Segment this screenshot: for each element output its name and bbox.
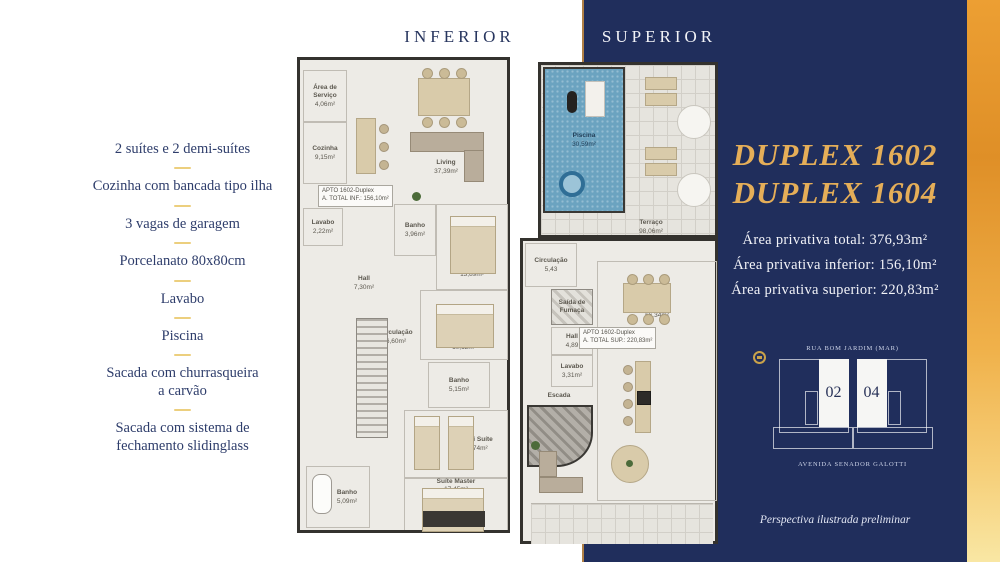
divider: [174, 167, 191, 169]
footnote: Perspectiva ilustrada preliminar: [718, 514, 952, 526]
inferior-plan-body: Área de Serviço 4,06m² Cozinha 9,15m² Li…: [297, 57, 510, 533]
lounge-sofa: [539, 477, 583, 493]
chair: [439, 68, 450, 79]
room-circulacao-sup: Circulação 5,43: [525, 243, 577, 287]
divider: [174, 242, 191, 244]
divider: [174, 409, 191, 411]
inferior-title: INFERIOR: [392, 27, 527, 47]
feature-item: Sacada com churrasqueira a carvão: [106, 365, 258, 400]
room-banho-1: Banho 3,96m²: [394, 204, 436, 256]
apto-label-inferior: APTO 1602-Duplex A. TOTAL INF.: 156,10m²: [318, 185, 393, 207]
room-lavabo-sup: Lavabo 3,31m²: [551, 355, 593, 387]
feature-item: 3 vagas de garagem: [125, 216, 240, 233]
room-lavabo: Lavabo 2,22m²: [303, 208, 343, 246]
chair: [627, 314, 638, 325]
plant: [412, 192, 421, 201]
room-area-servico: Área de Serviço 4,06m²: [303, 70, 347, 122]
panel-content: DUPLEX 1602 DUPLEX 1604 Área privativa t…: [718, 136, 952, 304]
twin-bed: [414, 416, 440, 470]
compass-icon: [753, 351, 766, 364]
area-superior: Área privativa superior: 220,83m²: [718, 278, 952, 303]
chair: [659, 274, 670, 285]
pool-ladder: [567, 91, 577, 113]
page: INFERIOR SUPERIOR 2 suítes e 2 demi-suít…: [0, 0, 1000, 562]
umbrella: [677, 105, 711, 139]
divider: [174, 317, 191, 319]
spiral-stairs: [527, 405, 593, 467]
kitchen-island: [356, 118, 376, 174]
sofa: [410, 132, 484, 152]
stairs: [356, 318, 388, 438]
room-saida-fumaca: Saída de Fumaça: [551, 289, 593, 325]
chair: [627, 274, 638, 285]
bathtub: [312, 474, 332, 514]
feature-item: Sacada com sistema de fechamento sliding…: [115, 420, 249, 455]
tower-02: 02: [819, 359, 849, 427]
area-total: Área privativa total: 376,93m²: [718, 228, 952, 253]
chair: [422, 117, 433, 128]
street-bottom-label: AVENIDA SENADOR GALOTTI: [745, 461, 960, 468]
chair: [643, 274, 654, 285]
features-list: 2 suítes e 2 demi-suítes Cozinha com ban…: [55, 141, 310, 455]
pillow: [415, 417, 439, 427]
superior-lower-block: Circulação 5,43 Saída de Fumaça Hall 4,8…: [520, 238, 718, 544]
room-cozinha: Cozinha 9,15m²: [303, 122, 347, 184]
plant: [531, 441, 540, 450]
bed-suite-1: [450, 216, 496, 274]
stool: [623, 399, 633, 409]
duplex-title-1604: DUPLEX 1604: [718, 174, 952, 212]
unit-number-04: 04: [864, 384, 880, 402]
keyplan-diagram: 02 04: [773, 357, 933, 457]
stool: [623, 365, 633, 375]
stool: [379, 160, 389, 170]
pool: Piscina 30,59m²: [543, 67, 625, 213]
superior-floor-plan: Piscina 30,59m² Terraço 98,06m² Circu: [520, 62, 718, 544]
unit-number-02: 02: [826, 384, 842, 402]
sofa: [464, 150, 484, 182]
pillow: [451, 217, 495, 227]
tower-04: 04: [857, 359, 887, 427]
chair: [643, 314, 654, 325]
bed-demi-suite-1: [436, 304, 494, 348]
stove: [637, 391, 651, 405]
feature-item: Lavabo: [161, 291, 204, 308]
chair: [456, 117, 467, 128]
bed-throw: [423, 511, 485, 527]
dining-table: [418, 78, 470, 116]
stool: [379, 142, 389, 152]
stool: [623, 382, 633, 392]
terrace-strip: [531, 503, 713, 544]
pillow: [449, 417, 473, 427]
room-terraco: Terraço 98,06m²: [611, 217, 691, 237]
apto-label-superior: APTO 1602-Duplex A. TOTAL SUP.: 220,83m²: [579, 327, 656, 349]
keyplan: RUA BOM JARDIM (MAR) 02 04 AVENIDA SENAD…: [745, 345, 960, 468]
chair: [456, 68, 467, 79]
sun-lounger: [645, 163, 677, 176]
duplex-title-1602: DUPLEX 1602: [718, 136, 952, 174]
area-lines: Área privativa total: 376,93m² Área priv…: [718, 228, 952, 304]
base-right: [853, 427, 933, 449]
umbrella: [677, 173, 711, 207]
feature-item: 2 suítes e 2 demi-suítes: [115, 141, 250, 158]
balcony-left: [805, 391, 818, 425]
twin-bed: [448, 416, 474, 470]
table-centerpiece: [626, 460, 633, 467]
room-escada: Escada: [529, 389, 589, 403]
sun-lounger: [645, 93, 677, 106]
balcony-right: [888, 391, 901, 425]
chair: [659, 314, 670, 325]
room-banho-2: Banho 5,15m²: [428, 362, 490, 408]
sun-lounger: [645, 147, 677, 160]
feature-item: Porcelanato 80x80cm: [119, 253, 245, 270]
inferior-floor-plan: Área de Serviço 4,06m² Cozinha 9,15m² Li…: [297, 57, 510, 533]
bed-master: [422, 488, 484, 532]
lounge-sofa: [539, 451, 557, 477]
superior-upper-block: Piscina 30,59m² Terraço 98,06m²: [538, 62, 718, 238]
pillow: [437, 305, 493, 315]
gold-gradient-strip: [967, 0, 1000, 562]
gourmet-table: [623, 283, 671, 313]
divider: [174, 280, 191, 282]
stool: [379, 124, 389, 134]
room-piscina: Piscina 30,59m²: [545, 69, 623, 211]
street-top-label: RUA BOM JARDIM (MAR): [745, 345, 960, 352]
feature-item: Piscina: [162, 328, 204, 345]
area-inferior: Área privativa inferior: 156,10m²: [718, 253, 952, 278]
sun-lounger: [645, 77, 677, 90]
base-left: [773, 427, 853, 449]
pillow: [423, 489, 483, 499]
divider: [174, 354, 191, 356]
chair: [439, 117, 450, 128]
swim-ring: [559, 171, 585, 197]
stool: [623, 416, 633, 426]
pool-lounger: [585, 81, 605, 117]
superior-title: SUPERIOR: [595, 27, 723, 47]
feature-item: Cozinha com bancada tipo ilha: [93, 178, 273, 195]
chair: [422, 68, 433, 79]
divider: [174, 205, 191, 207]
